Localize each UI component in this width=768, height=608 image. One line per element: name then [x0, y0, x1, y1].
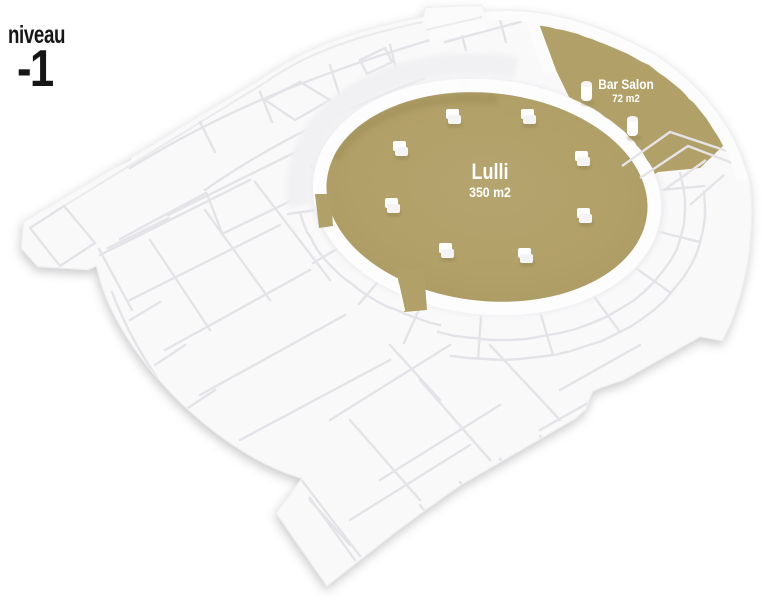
svg-text:Bar Salon: Bar Salon [598, 76, 654, 92]
svg-text:Lulli: Lulli [471, 160, 508, 184]
svg-text:72 m2: 72 m2 [612, 94, 640, 106]
svg-text:-1: -1 [17, 41, 54, 98]
svg-text:350 m2: 350 m2 [469, 184, 511, 200]
